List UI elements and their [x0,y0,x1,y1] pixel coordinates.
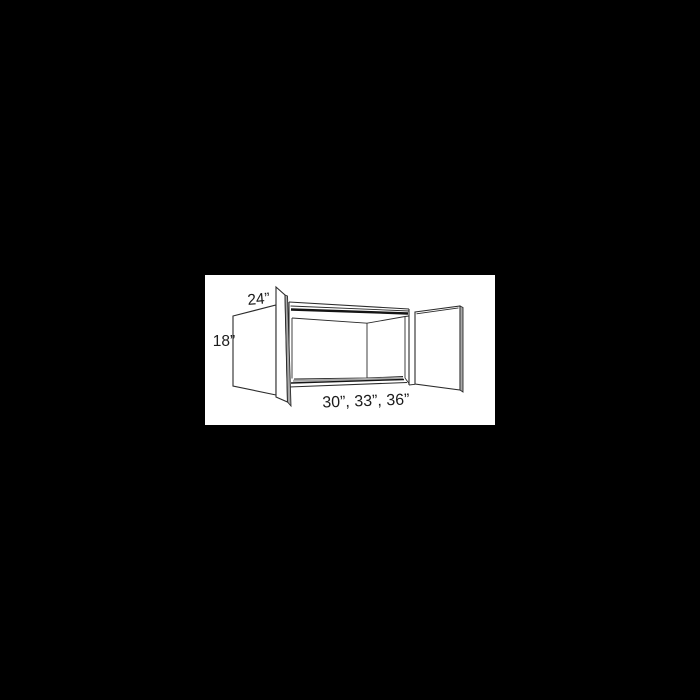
cabinet-right-stile [405,309,415,385]
right-door [415,306,463,392]
product-diagram-panel: 24” 18” 30”, 33”, 36” [205,275,495,425]
cabinet-bottom-shelf [289,377,407,388]
right-door-face [415,306,460,390]
page-background: 24” 18” 30”, 33”, 36” [0,0,700,700]
cabinet-side-panel [233,305,276,395]
cabinet-drawing: 24” 18” 30”, 33”, 36” [205,275,495,425]
width-options-label: 30”, 33”, 36” [322,391,410,411]
cabinet-top-edges [289,302,409,314]
depth-dimension-label: 24” [247,290,271,309]
right-door-edge [460,306,463,392]
cabinet-interior [289,302,405,387]
height-dimension-label: 18” [213,333,235,350]
